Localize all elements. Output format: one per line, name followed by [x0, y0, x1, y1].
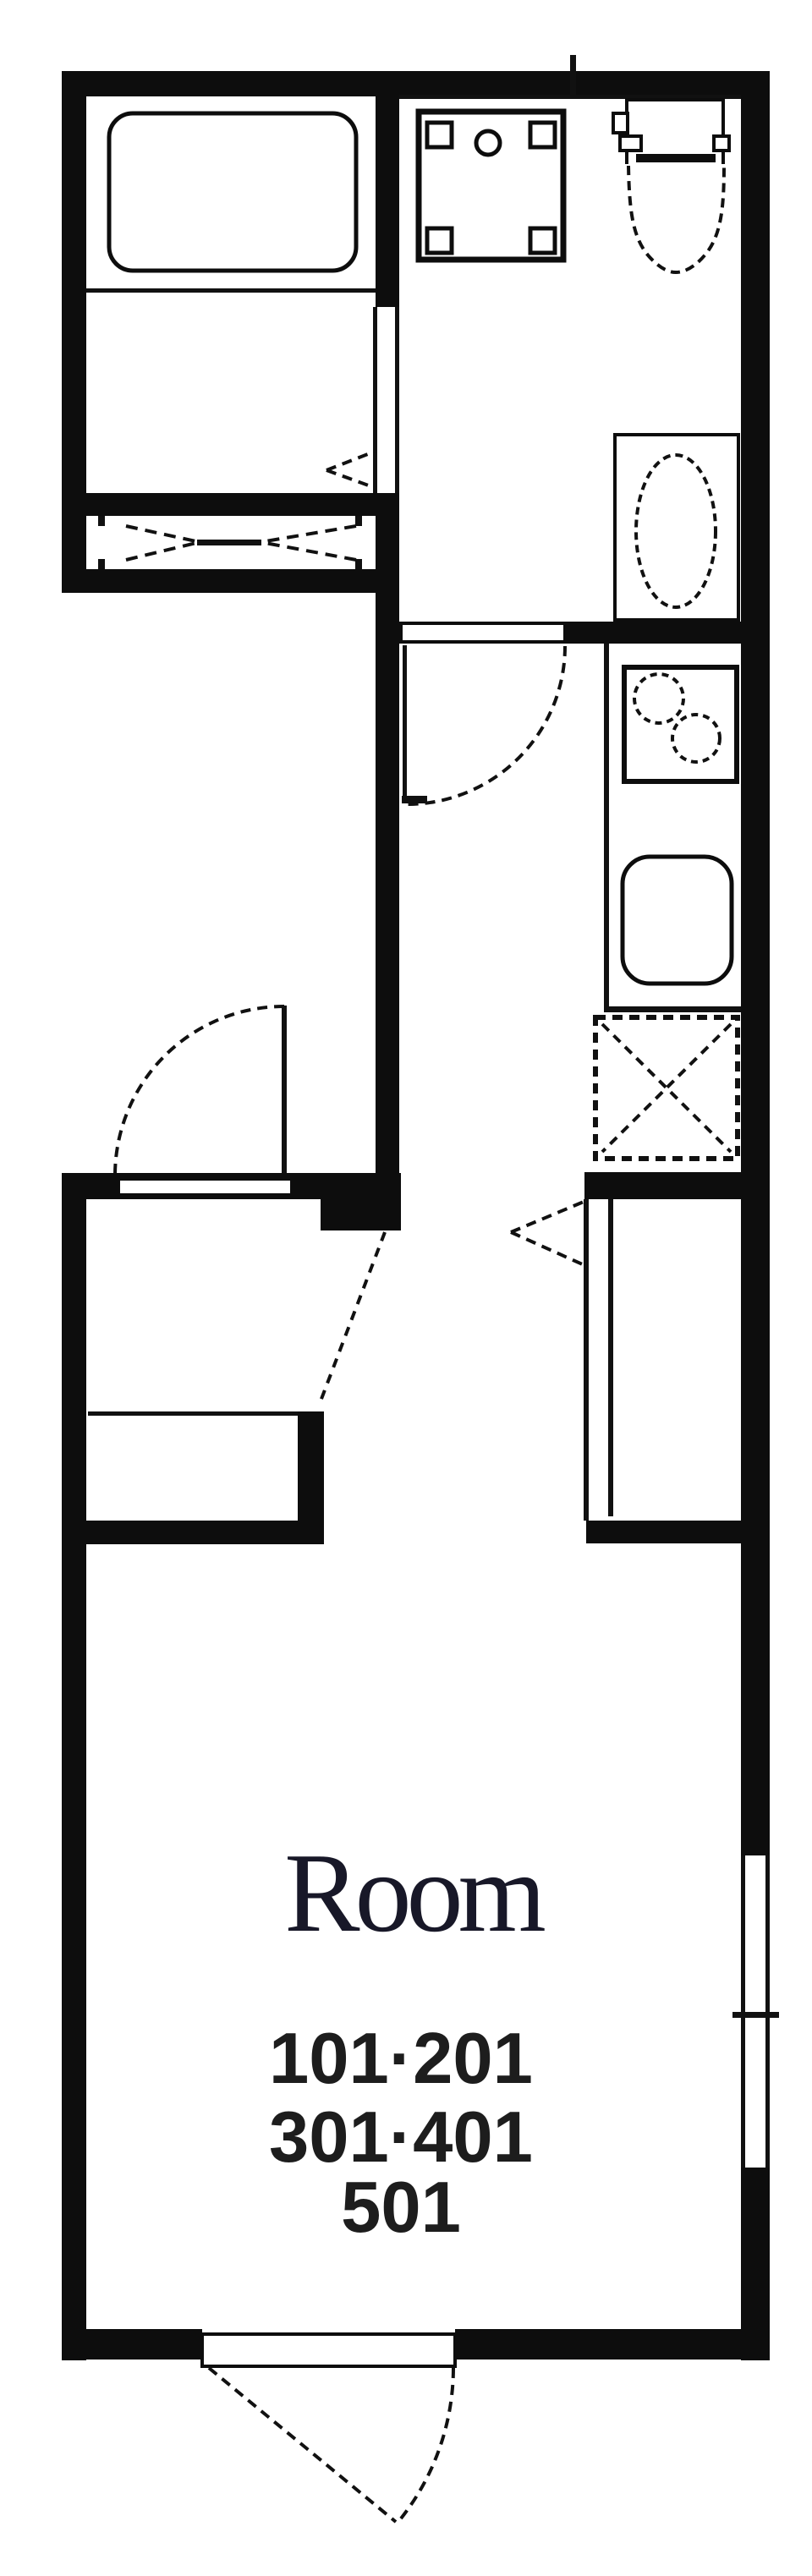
- svg-text:501: 501: [341, 2168, 461, 2248]
- svg-text:301·401: 301·401: [269, 2097, 533, 2178]
- svg-text:Room: Room: [284, 1830, 545, 1955]
- svg-text:101·201: 101·201: [269, 2019, 533, 2099]
